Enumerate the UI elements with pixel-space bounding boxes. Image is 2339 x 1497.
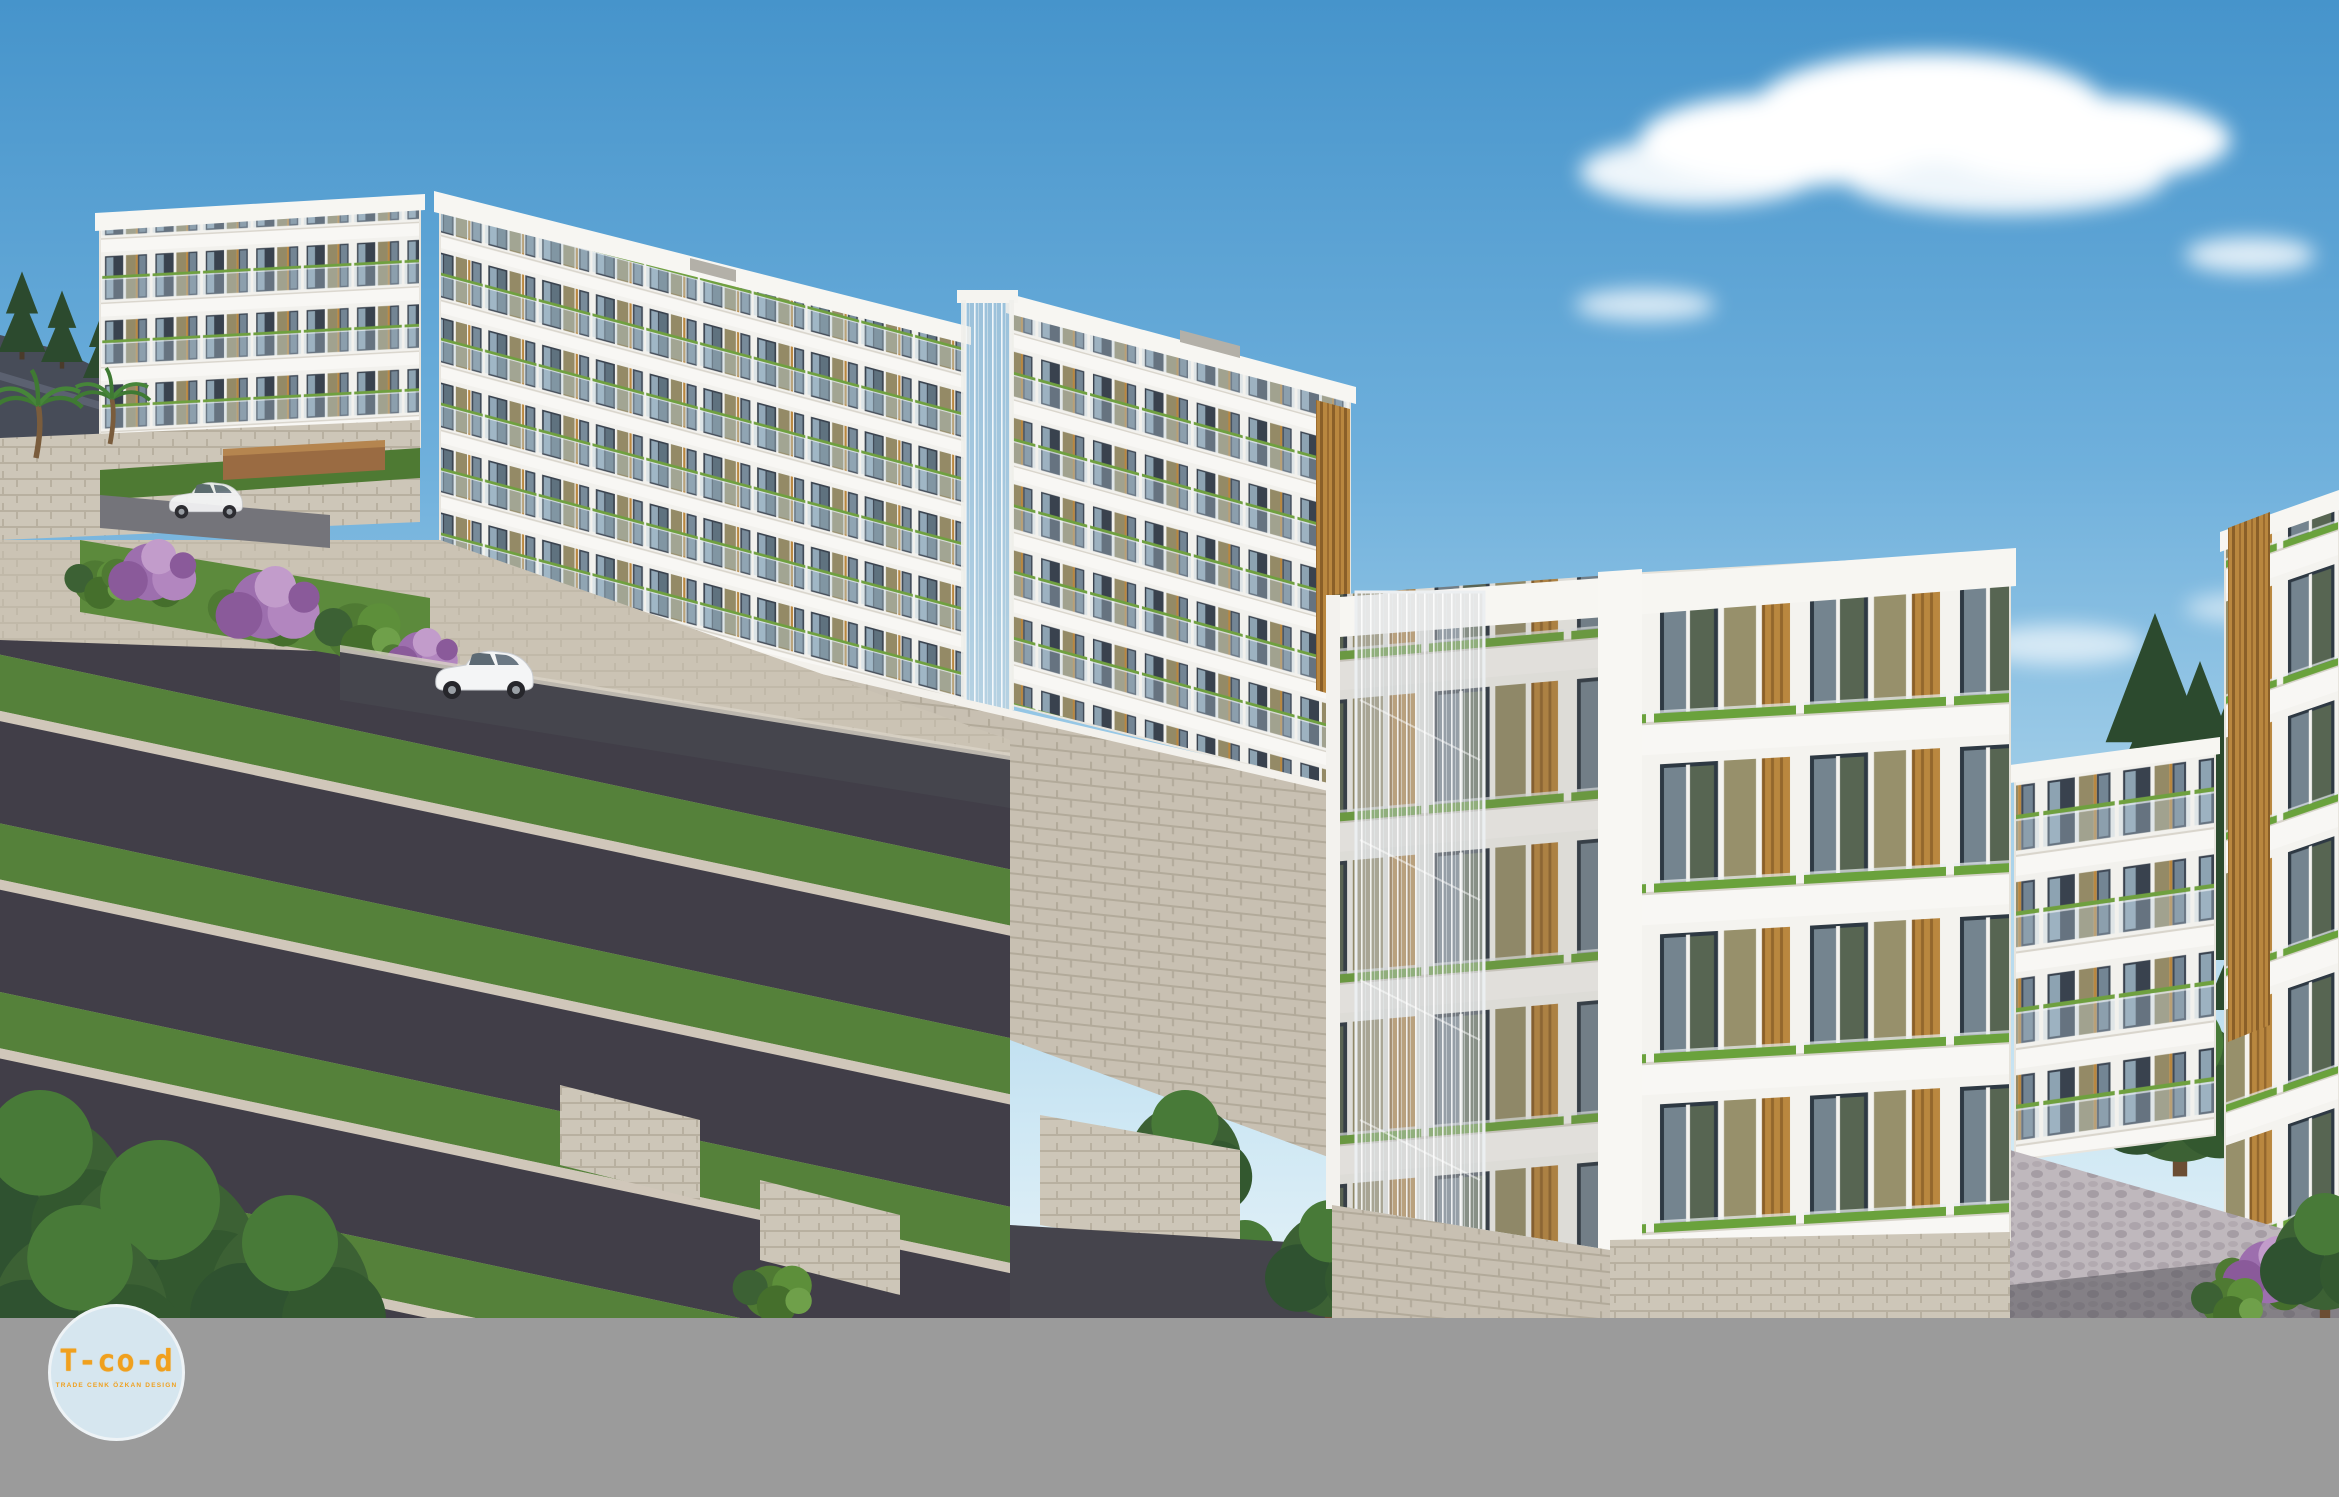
presentation-board: AMASRA TOPLU KONUT PROJESİ T-COD MİMARLI…	[0, 0, 2339, 1497]
footer-bar: AMASRA TOPLU KONUT PROJESİ T-COD MİMARLI…	[0, 1318, 2339, 1497]
logo-caption: TRADE CENK ÖZKAN DESIGN	[51, 1382, 182, 1389]
logo-wordmark: T-co-d	[51, 1344, 182, 1379]
building-rear-right	[2010, 737, 2220, 1160]
stair-mesh-column	[1356, 592, 1484, 1242]
building-far-right	[2220, 490, 2339, 1308]
building-foreground	[1326, 548, 2016, 1318]
render-scene	[0, 0, 2339, 1497]
company-logo: T-co-d TRADE CENK ÖZKAN DESIGN	[48, 1304, 185, 1441]
elevator-shaft	[957, 290, 1018, 710]
